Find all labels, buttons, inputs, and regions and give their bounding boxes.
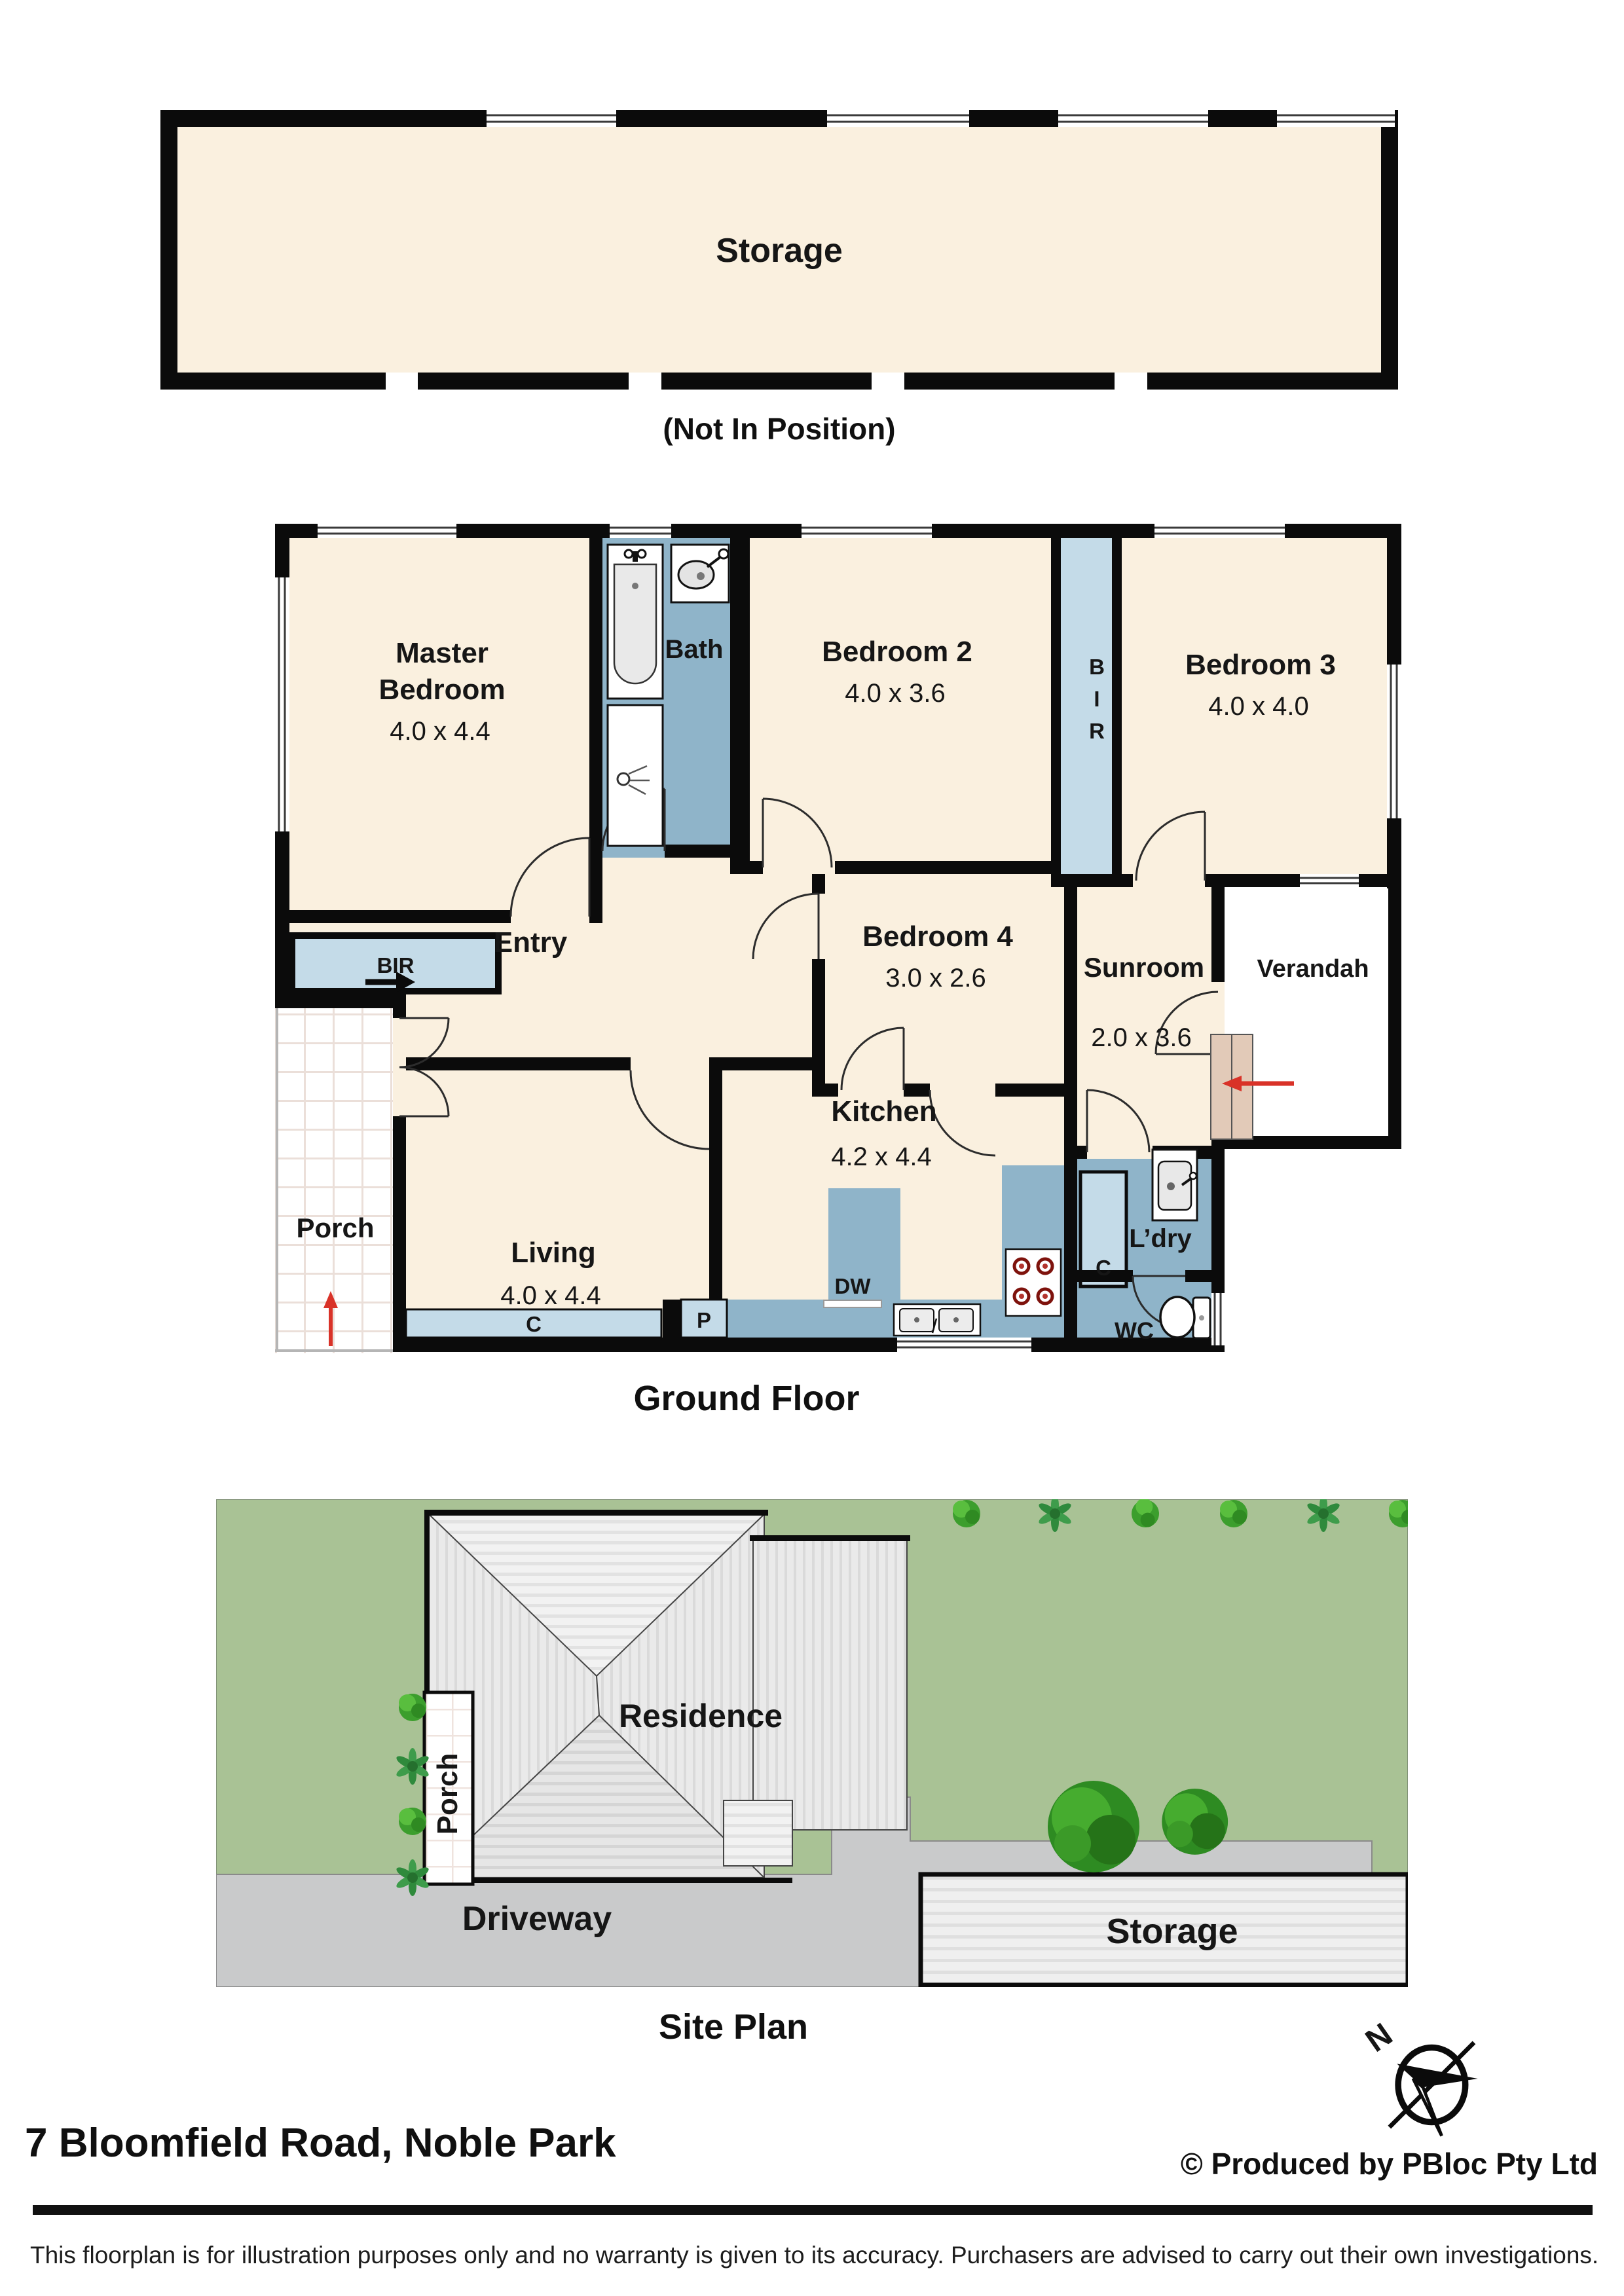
- sunroom-label: Sunroom: [1084, 952, 1204, 983]
- laundry-sink: [1153, 1150, 1197, 1220]
- storage-upper-plan: Storage: [160, 110, 1398, 392]
- address: 7 Bloomfield Road, Noble Park: [25, 2120, 616, 2166]
- laundry-label: L’dry: [1129, 1224, 1192, 1253]
- site-plan-title: Site Plan: [216, 2007, 1251, 2047]
- storage-not-in-position-note: (Not In Position): [160, 411, 1398, 446]
- pantry-label: P: [697, 1308, 711, 1332]
- compass-icon: N: [1362, 2016, 1486, 2141]
- master-dims: 4.0 x 4.4: [390, 717, 490, 746]
- residence-label: Residence: [619, 1698, 783, 1734]
- footer-divider: [33, 2205, 1593, 2215]
- site-storage-label: Storage: [1106, 1912, 1238, 1951]
- entry-label: Entry: [494, 926, 568, 958]
- kitchen-label: Kitchen: [831, 1095, 936, 1127]
- disclaimer-text: This floorplan is for illustration purpo…: [30, 2242, 1602, 2269]
- cupboard-laundry-label: C: [1096, 1256, 1111, 1280]
- porch-label: Porch: [296, 1212, 374, 1243]
- cooktop: [1006, 1249, 1061, 1316]
- storage-upper-label: Storage: [716, 232, 843, 270]
- living-label: Living: [511, 1237, 596, 1269]
- producer-credit: © Produced by PBloc Pty Ltd: [1008, 2146, 1598, 2181]
- driveway-label: Driveway: [462, 1900, 612, 1938]
- bedroom2-dims: 4.0 x 3.6: [845, 679, 945, 708]
- bir-hall-label: BIR: [1085, 655, 1109, 751]
- shower: [608, 705, 663, 846]
- bir-master-label: BIR: [377, 953, 415, 977]
- bath-label: Bath: [665, 635, 724, 664]
- master-label-2: Bedroom: [378, 674, 505, 706]
- living-dims: 4.0 x 4.4: [500, 1281, 600, 1310]
- floorplan-page: Storage (Not In Position): [0, 0, 1624, 2296]
- bedroom2-label: Bedroom 2: [822, 636, 972, 668]
- site-plan: Residence Porch Driveway Storage: [216, 1499, 1408, 1987]
- residence-roof: [424, 1510, 910, 1884]
- wc-label: WC: [1115, 1317, 1154, 1344]
- sunroom-dims: 2.0 x 3.6: [1091, 1023, 1191, 1052]
- bedroom4-label: Bedroom 4: [862, 920, 1013, 953]
- bedroom3-dims: 4.0 x 4.0: [1208, 692, 1308, 721]
- bedroom3-label: Bedroom 3: [1185, 649, 1336, 681]
- site-porch-label: Porch: [432, 1753, 464, 1835]
- kitchen-dims: 4.2 x 4.4: [831, 1142, 931, 1171]
- bath-sink: [671, 545, 729, 602]
- ground-floor-title: Ground Floor: [275, 1378, 1218, 1419]
- bedroom4-dims: 3.0 x 2.6: [885, 964, 986, 993]
- dishwasher-label: DW: [835, 1274, 872, 1298]
- ground-floor-plan: Master Bedroom 4.0 x 4.4 Bath Bedroom 2 …: [275, 524, 1401, 1355]
- toilet: [1160, 1297, 1210, 1338]
- compass-north-label: N: [1362, 2016, 1399, 2059]
- cupboard-living-label: C: [526, 1312, 542, 1336]
- storage-upper-room: Storage: [160, 110, 1398, 390]
- verandah-label: Verandah: [1257, 955, 1369, 983]
- bathtub: [608, 545, 663, 699]
- master-label-1: Master: [396, 637, 489, 669]
